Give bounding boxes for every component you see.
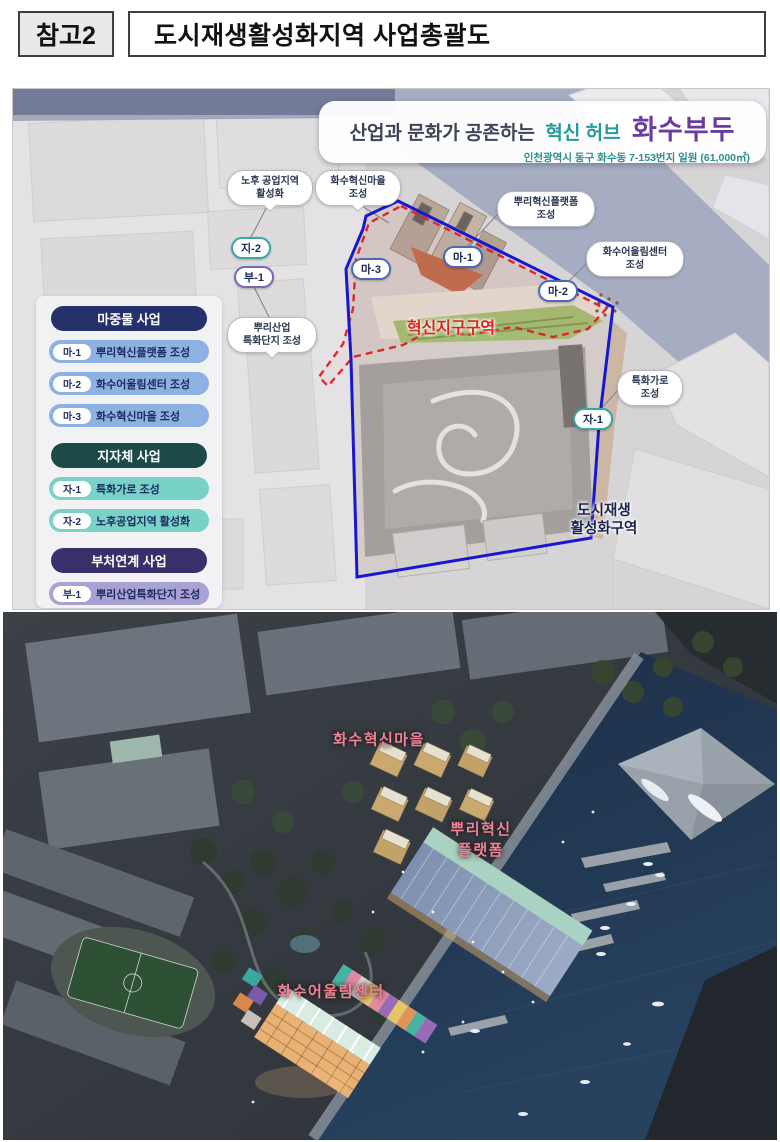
legend-item-label: 화수혁신마을 조성 xyxy=(96,408,180,424)
map-badge-ma2: 마-2 xyxy=(538,280,578,302)
legend-item-code: 마-3 xyxy=(53,408,91,424)
legend-item-label: 뿌리혁신플랫폼 조성 xyxy=(96,344,190,360)
legend-section-primer: 마중물 사업 xyxy=(51,306,207,331)
map-badge-ja1: 자-1 xyxy=(573,408,613,430)
document-page: 참고2 도시재생활성화지역 사업총괄도 xyxy=(0,0,780,1142)
callout-hwasu-village: 화수혁신마을 조성 xyxy=(315,170,401,206)
legend-section-municipal: 지자체 사업 xyxy=(51,443,207,468)
legend-item-label: 뿌리산업특화단지 조성 xyxy=(96,586,200,602)
legend-item-code: 자-2 xyxy=(53,513,91,529)
legend-section-ministry: 부처연계 사업 xyxy=(51,548,207,573)
map-badge-ma1: 마-1 xyxy=(443,246,483,268)
aerial-night-render: 화수혁신마을 뿌리혁신 플랫폼 화수어울림센터 xyxy=(3,612,777,1140)
legend-item: 부-1 뿌리산업특화단지 조성 xyxy=(49,582,209,605)
legend-panel: 마중물 사업 마-1 뿌리혁신플랫폼 조성 마-2 화수어울림센터 조성 마-3… xyxy=(36,296,222,608)
label-village: 화수혁신마을 xyxy=(333,730,425,751)
map-title-highlight: 혁신 허브 xyxy=(545,123,620,144)
legend-item: 마-3 화수혁신마을 조성 xyxy=(49,404,209,427)
map-title-subtitle: 인천광역시 동구 화수동 7-153번지 일원 (61,000㎡) xyxy=(319,150,766,165)
map-badge-ji2: 지-2 xyxy=(231,237,271,259)
legend-item-label: 화수어울림센터 조성 xyxy=(96,376,190,392)
park-pond xyxy=(290,935,320,953)
render-scene xyxy=(3,612,777,1140)
map-badge-bu1: 부-1 xyxy=(234,266,274,288)
legend-item-code: 마-2 xyxy=(53,376,91,392)
callout-root-platform: 뿌리혁신플랫폼 조성 xyxy=(497,191,595,227)
label-platform: 뿌리혁신 플랫폼 xyxy=(450,819,511,861)
map-title-prefix: 산업과 문화가 공존하는 xyxy=(350,123,535,144)
label-community-center: 화수어울림센터 xyxy=(277,982,384,1003)
map-title-name: 화수부두 xyxy=(632,115,735,145)
callout-special-street: 특화가로 조성 xyxy=(617,370,683,406)
callout-old-industrial: 노후 공업지역 활성화 xyxy=(227,170,313,206)
callout-root-industry-district: 뿌리산업 특화단지 조성 xyxy=(227,317,317,353)
map-badge-ma3: 마-3 xyxy=(351,258,391,280)
legend-item-code: 마-1 xyxy=(53,344,91,360)
legend-item: 마-1 뿌리혁신플랫폼 조성 xyxy=(49,340,209,363)
legend-item-label: 특화가로 조성 xyxy=(96,481,160,497)
legend-item: 자-1 특화가로 조성 xyxy=(49,477,209,500)
legend-item-label: 노후공업지역 활성화 xyxy=(96,513,190,529)
legend-item-code: 자-1 xyxy=(53,481,91,497)
regeneration-area-label: 도시재생 활성화구역 xyxy=(571,502,638,538)
innovation-district-label: 혁신지구구역 xyxy=(407,314,495,338)
map-title-line: 산업과 문화가 공존하는 혁신 허브 화수부두 xyxy=(319,108,766,147)
page-title: 도시재생활성화지역 사업총괄도 xyxy=(128,11,766,57)
legend-item: 자-2 노후공업지역 활성화 xyxy=(49,509,209,532)
callout-community-center: 화수어울림센터 조성 xyxy=(586,241,684,277)
map-title-card: 산업과 문화가 공존하는 혁신 허브 화수부두 인천광역시 동구 화수동 7-1… xyxy=(319,101,766,163)
center-glow xyxy=(255,1066,351,1098)
reference-badge: 참고2 xyxy=(18,11,114,57)
legend-item-code: 부-1 xyxy=(53,586,91,602)
legend-item: 마-2 화수어울림센터 조성 xyxy=(49,372,209,395)
site-plan-map: 산업과 문화가 공존하는 혁신 허브 화수부두 인천광역시 동구 화수동 7-1… xyxy=(12,88,770,610)
